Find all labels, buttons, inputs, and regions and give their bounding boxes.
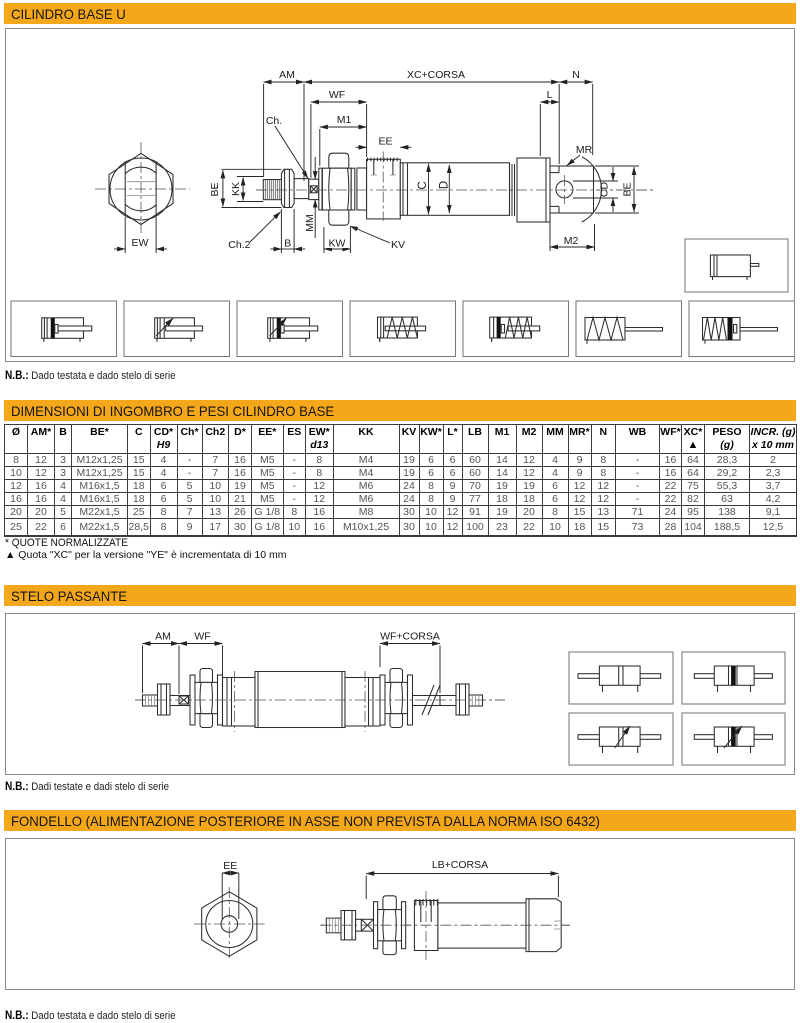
svg-text:EE: EE [378,136,392,148]
svg-text:N: N [572,69,580,81]
svg-text:CD: CD [599,182,611,198]
svg-text:KV: KV [391,239,405,251]
svg-text:KK: KK [230,182,242,196]
svg-text:MR: MR [576,144,593,156]
svg-text:B: B [284,238,291,250]
svg-text:Ch.2: Ch.2 [228,239,250,251]
svg-text:WF: WF [329,89,345,101]
svg-text:WF+CORSA: WF+CORSA [380,631,440,643]
svg-text:EE: EE [223,860,237,872]
svg-text:AM: AM [279,69,295,81]
svg-text:L: L [547,89,553,101]
svg-text:C: C [417,181,429,189]
svg-text:EW: EW [132,237,149,249]
svg-text:BE: BE [622,182,634,196]
svg-text:MM: MM [304,214,316,232]
svg-text:Ch.: Ch. [266,115,282,127]
svg-text:WF: WF [194,631,210,643]
svg-text:XC+CORSA: XC+CORSA [407,69,465,81]
svg-text:M2: M2 [564,235,579,247]
svg-text:D: D [438,181,450,189]
svg-text:BE: BE [209,182,221,196]
svg-text:LB+CORSA: LB+CORSA [432,859,488,871]
svg-text:AM: AM [155,631,171,643]
svg-text:M1: M1 [337,114,352,126]
svg-text:KW: KW [329,238,346,250]
